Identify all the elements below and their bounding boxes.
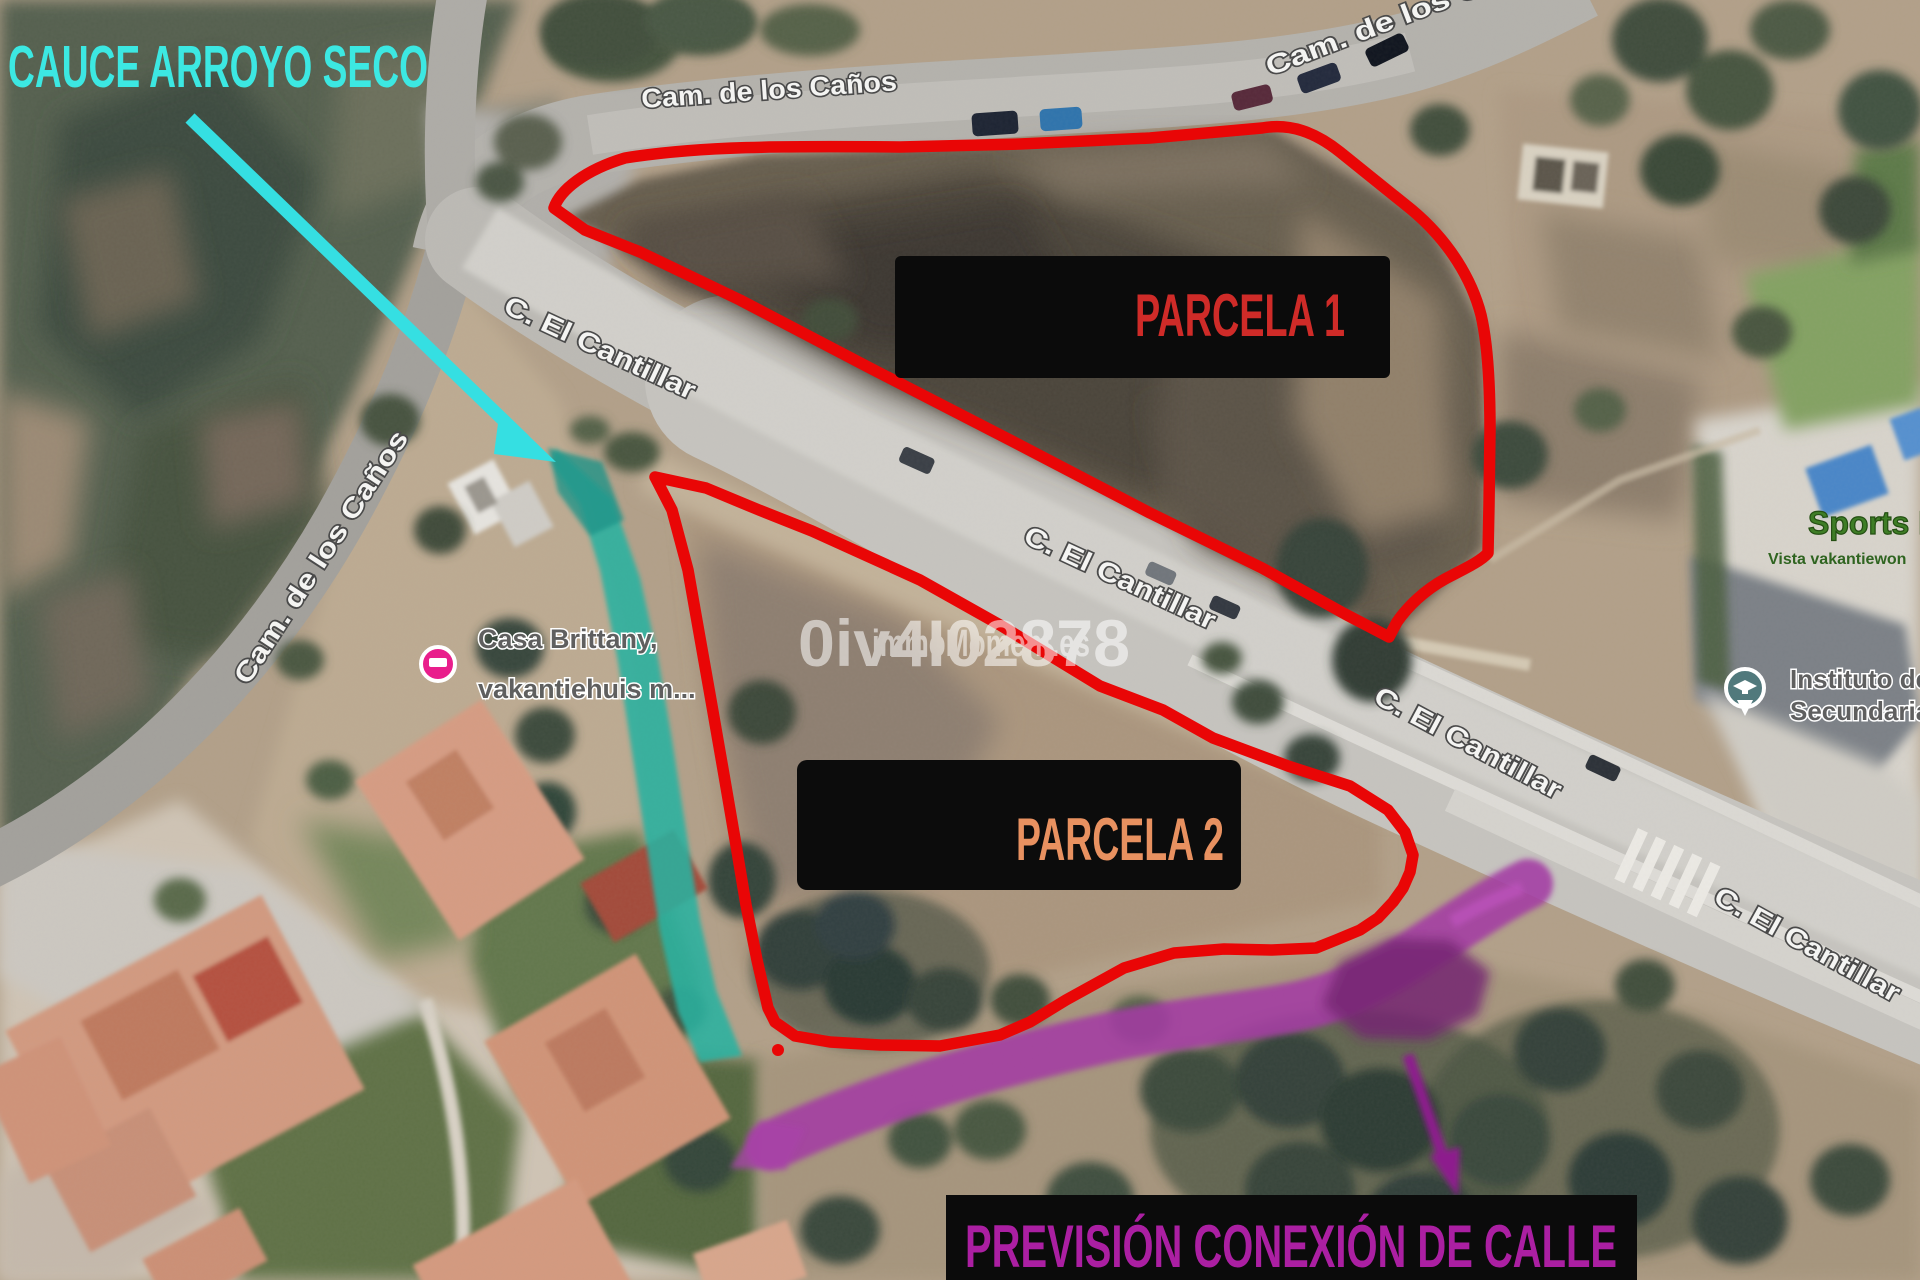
svg-text:CAUCE ARROYO SECO: CAUCE ARROYO SECO: [8, 34, 428, 100]
svg-text:Sports Fi: Sports Fi: [1808, 505, 1920, 541]
svg-text:vakantiehuis m...: vakantiehuis m...: [478, 674, 696, 704]
svg-text:PREVISIÓN CONEXIÓN DE CALLE: PREVISIÓN CONEXIÓN DE CALLE: [965, 1213, 1617, 1280]
svg-text:Instituto de: Instituto de: [1790, 664, 1920, 694]
svg-text:PARCELA 2: PARCELA 2: [1016, 806, 1224, 873]
svg-text:immoMoment.es: immoMoment.es: [872, 623, 1090, 665]
svg-text:Vista vakantiewon: Vista vakantiewon: [1768, 551, 1906, 568]
svg-text:PARCELA 1: PARCELA 1: [1135, 282, 1345, 349]
svg-text:Casa Brittany,: Casa Brittany,: [478, 624, 658, 654]
svg-text:Secundaria: Secundaria: [1790, 696, 1920, 726]
